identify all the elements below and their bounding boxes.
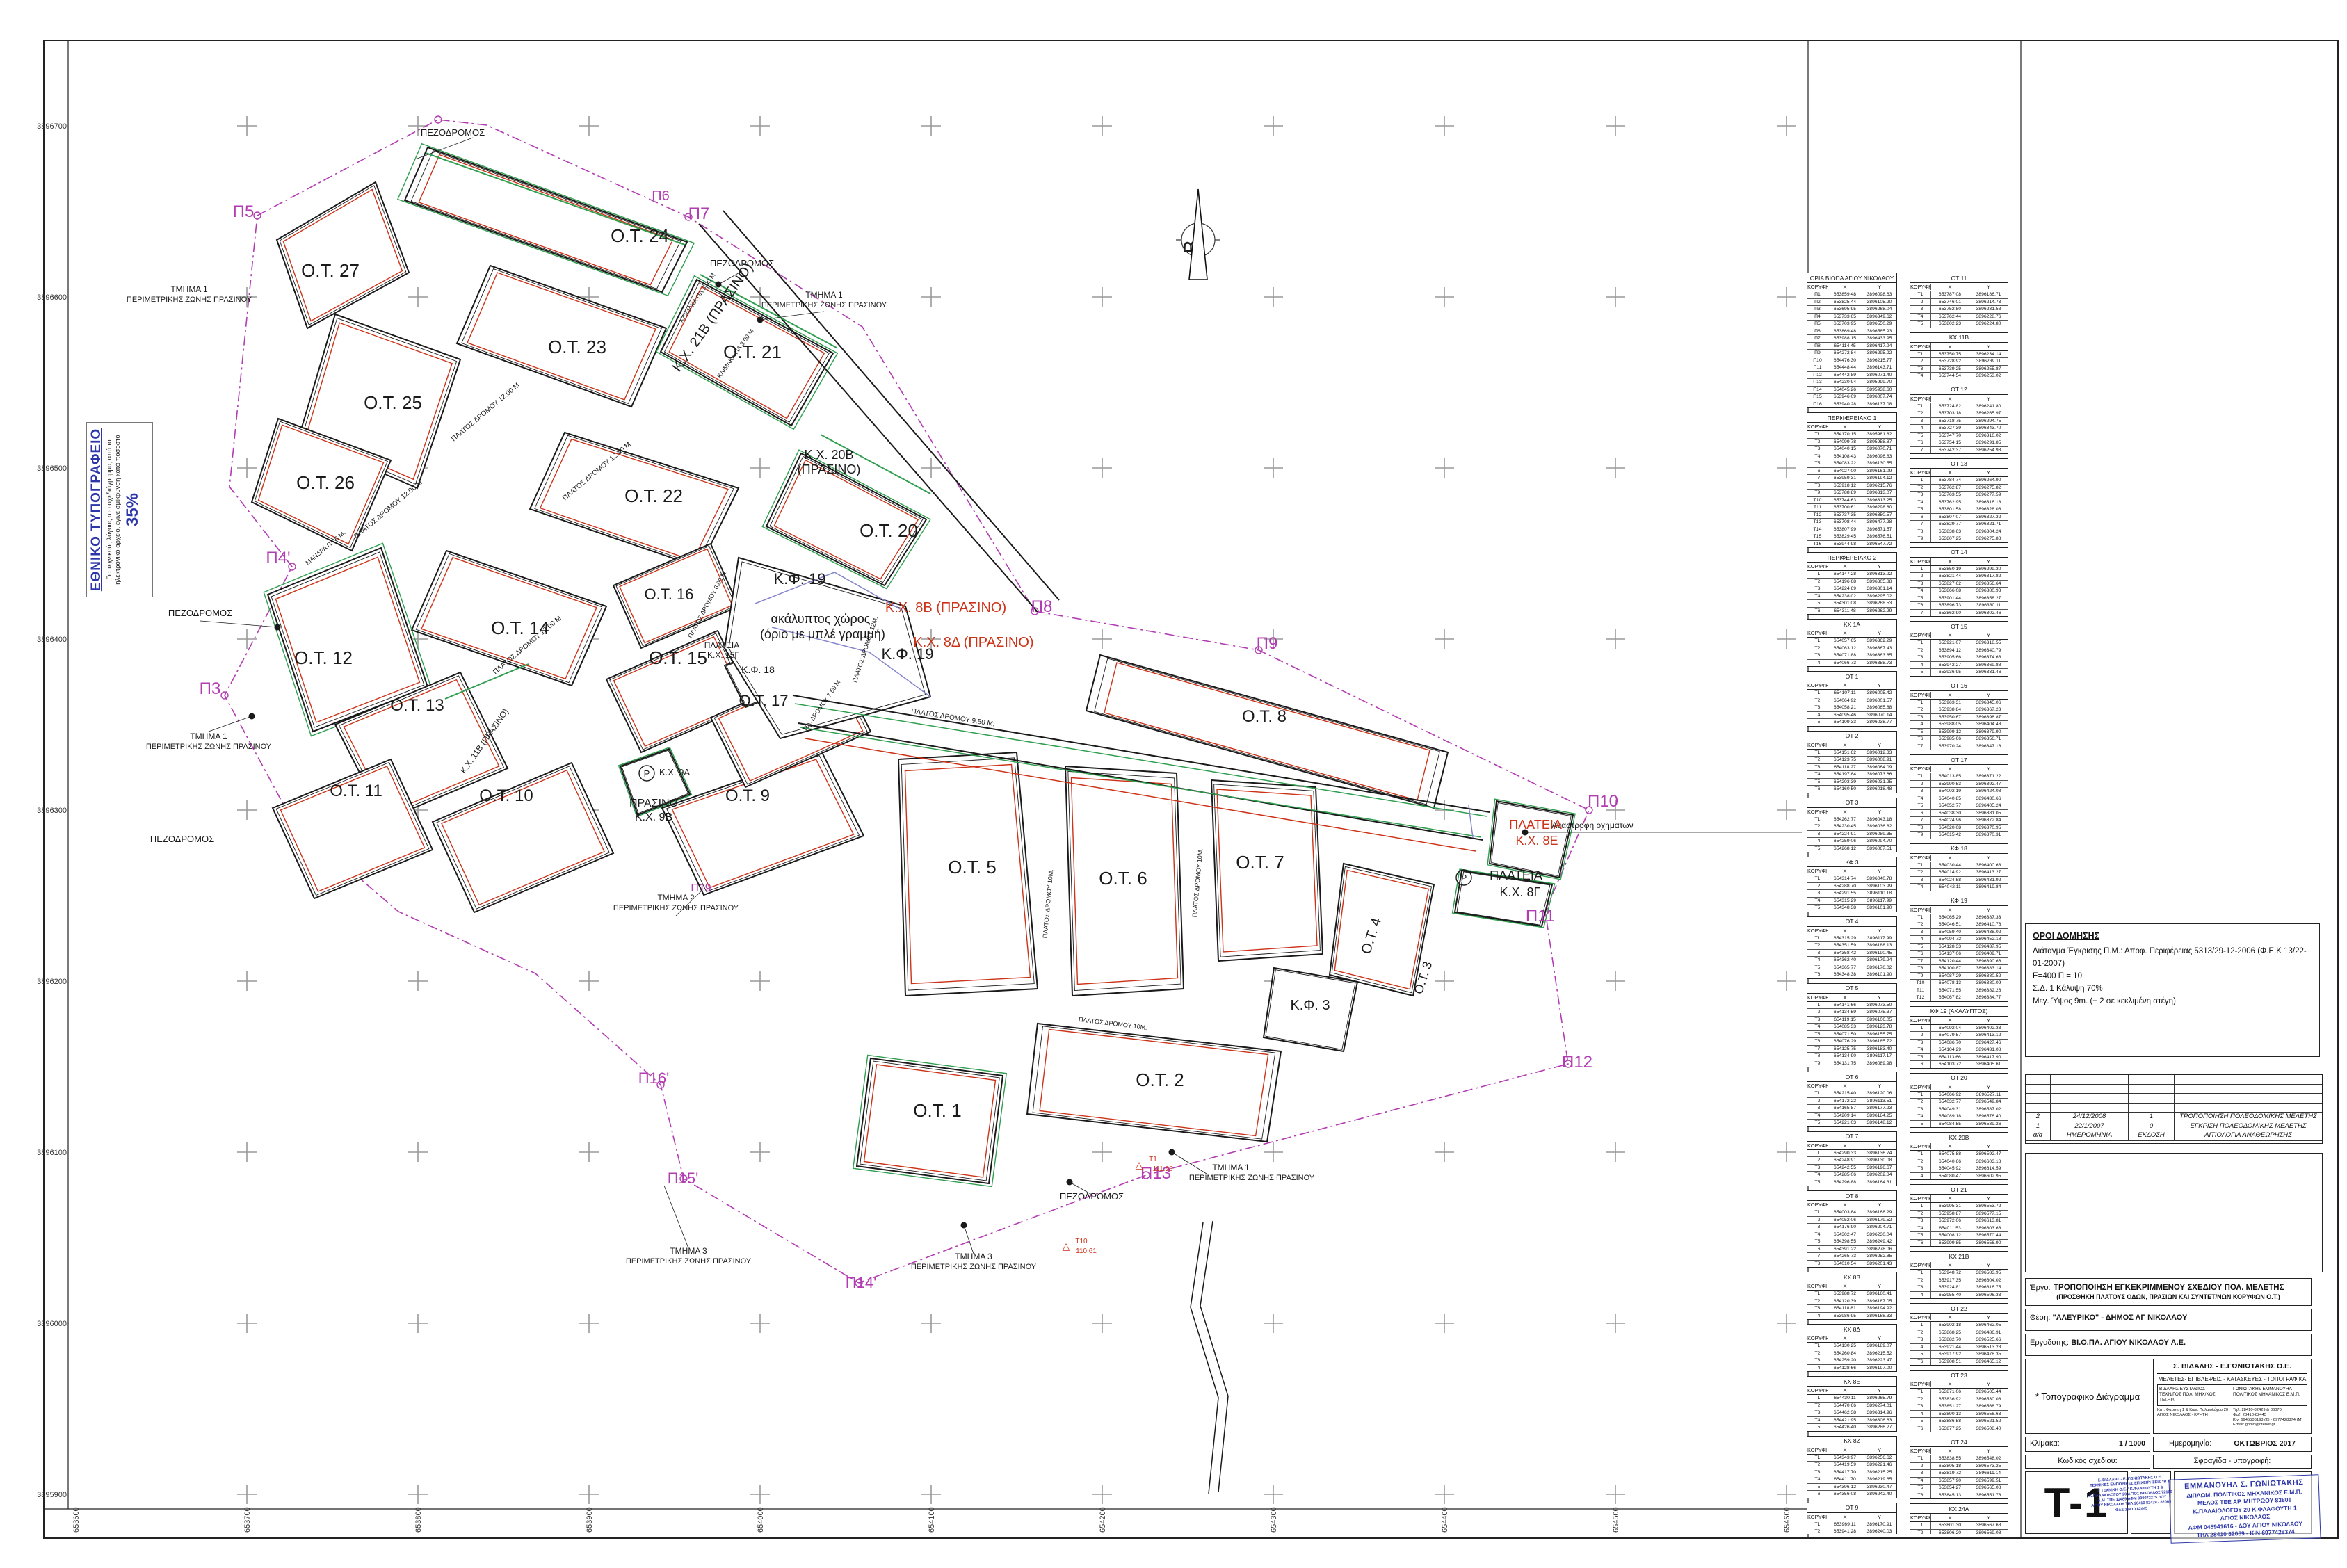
coordinate-row: Π2653825.443896105.20: [1807, 299, 1896, 307]
coordinate-row: Τ7653970.243896347.18: [1910, 743, 2008, 750]
coordinate-row: Τ5654348.383896101.90: [1807, 905, 1896, 912]
map-label: Ο.Τ. 13: [390, 696, 444, 715]
coordinate-row: Τ5654084.553896539.26: [1910, 1121, 2008, 1128]
coordinate-row: Τ5654296.883896164.31: [1807, 1179, 1896, 1186]
coordinate-row: Τ5654052.773896405.24: [1910, 802, 2008, 810]
grid-cross: [1777, 1142, 1796, 1162]
coordinate-row: Τ2654288.703896103.99: [1807, 883, 1896, 891]
map-label: ΠΛΑΤΕΙΑ: [704, 640, 739, 650]
grid-cross: [1606, 1314, 1625, 1333]
partner2-title: ΠΟΛΙΤΙΚΟΣ ΜΗΧΑΝΙΚΟΣ Ε.Μ.Π.: [2233, 1392, 2300, 1397]
map-label: (ΠΡΑΣΙΝΟ): [798, 462, 861, 476]
coordinate-row: Τ4654285.063896202.84: [1807, 1172, 1896, 1179]
stamp-body: Για τεχνικούς λόγους στο σχεδιάγραμμα, α…: [106, 426, 122, 593]
coordinate-row: Τ2653821.443896317.82: [1910, 573, 2008, 581]
grid-cross: [408, 1485, 428, 1504]
grid-label-y: 3895900: [37, 1491, 67, 1499]
map-label: Ο.Τ. 20: [860, 520, 918, 541]
grid-label-y: 3896700: [37, 122, 67, 131]
grid-label-x: 654200: [1099, 1507, 1107, 1533]
coordinate-table-title: ΚΦ 18: [1910, 844, 2008, 854]
map-label: Κ.Φ. 3: [1290, 998, 1330, 1013]
map-label: Κ.Φ. 19: [773, 570, 825, 588]
coordinate-row: Τ6654038.303896381.05: [1910, 810, 2008, 818]
coordinate-row: Τ2654419.593896221.46: [1807, 1462, 1896, 1469]
coordinate-row: Τ4653955.403896596.33: [1910, 1292, 2008, 1299]
coordinate-table: ΚΧ 20ΒΚΟΡΥΦΗXYΤ1654075.883896592.47Τ2654…: [1910, 1132, 2008, 1180]
coordinate-table-title: ΚΧ 8Ζ: [1807, 1437, 1896, 1446]
map-label: ΠΕΖΟΔΡΟΜΟΣ: [150, 834, 214, 844]
coordinate-table-header: ΚΟΡΥΦΗXY: [1910, 343, 2008, 351]
coordinate-row: Τ3653851.273896568.79: [1910, 1403, 2008, 1411]
partner2-name: ΓΩΝΙΩΤΑΚΗΣ ΕΜΜΑΝΟΥΗΛ: [2233, 1387, 2292, 1391]
coordinate-row: Τ7653862.903896302.46: [1910, 610, 2008, 617]
coordinate-table-header: ΚΟΡΥΦΗXY: [1910, 558, 2008, 566]
coordinate-table-title: ΟΤ 8: [1807, 1191, 1896, 1201]
coordinate-row: Τ4653921.443896513.28: [1910, 1344, 2008, 1352]
coordinate-table-header: ΚΟΡΥΦΗXY: [1807, 994, 1896, 1002]
grid-cross: [1606, 116, 1625, 136]
scale-label: Κλίμακα:: [2030, 1439, 2060, 1449]
coordinate-row: Π14654045.263895938.60: [1807, 387, 1896, 394]
titleblock-code: Κωδικός σχεδίου:: [2025, 1455, 2150, 1469]
coordinate-row: Τ4653988.053896404.43: [1910, 721, 2008, 729]
coordinate-row: Τ4653762.953896316.18: [1910, 499, 2008, 507]
coordinate-row: Π12654442.893896071.40: [1807, 372, 1896, 380]
grid-cross: [1435, 116, 1454, 136]
coordinate-row: Τ6654160.503896018.48: [1807, 786, 1896, 793]
map-label: Ο.Τ. 7: [1236, 852, 1284, 873]
coordinate-tables-column-2: ΟΤ 11ΚΟΡΥΦΗXYΤ1653787.083896186.71Τ26537…: [1910, 273, 2008, 1534]
revision-row: [2026, 1104, 2322, 1113]
grid-cross: [1777, 1314, 1796, 1333]
coordinate-row: Τ5653999.123896379.90: [1910, 729, 2008, 736]
coordinate-row: Τ4653890.133896556.63: [1910, 1411, 2008, 1419]
partner1-title: ΤΕΧΝ/ΓΟΣ ΠΟΛ. ΜΗΧ/ΚΟΣ ΤΕΙ.ΗΡ.: [2159, 1392, 2216, 1403]
map-label: Κ.Χ. 8Δ (ΠΡΑΣΙΝΟ): [913, 635, 1033, 650]
coordinate-row: Τ2654230.453896036.82: [1807, 823, 1896, 831]
coordinate-table-title: ΟΤ 23: [1910, 1371, 2008, 1380]
coordinate-row: Τ4653727.393896343.70: [1910, 425, 2008, 433]
coordinate-row: Τ3653950.673896398.87: [1910, 714, 2008, 722]
grid-label-x: 653600: [72, 1507, 81, 1533]
grid-cross: [579, 1142, 599, 1162]
coordinate-table: ΟΤ 16ΚΟΡΥΦΗXYΤ1653963.313896345.06Τ26539…: [1910, 681, 2008, 751]
grid-cross: [237, 1142, 257, 1162]
date-label: Ημερομηνία:: [2169, 1439, 2211, 1449]
coordinate-row: Τ2654046.513896410.76: [1910, 921, 2008, 929]
coordinate-table-title: ΚΧ 11Β: [1910, 333, 2008, 343]
coordinate-table-title: ΟΤ 11: [1910, 273, 2008, 283]
coordinate-row: Τ3653819.723896611.14: [1910, 1470, 2008, 1478]
coordinate-row: Τ2654260.843896215.52: [1807, 1350, 1896, 1358]
grid-cross: [237, 971, 257, 991]
coordinate-table-header: ΚΟΡΥΦΗXY: [1807, 1201, 1896, 1209]
coordinate-table-header: ΚΟΡΥΦΗXY: [1807, 563, 1896, 571]
coordinate-row: Τ4654108.433896096.83: [1807, 453, 1896, 461]
grid-cross: [1777, 458, 1796, 478]
coordinate-row: Τ1654262.773896043.18: [1807, 816, 1896, 824]
coordinate-table-title: ΟΤ 6: [1807, 1072, 1896, 1082]
grid-cross: [1092, 458, 1112, 478]
coordinate-row: Τ5653901.443896358.27: [1910, 595, 2008, 603]
map-label: Π6: [652, 188, 670, 204]
coordinate-table: ΟΤ 13ΚΟΡΥΦΗXYΤ1653784.743896264.90Τ26537…: [1910, 458, 2008, 543]
engineer-stamp: ΕΜΜΑΝΟΥΗΛ Σ. ΓΩΝΙΩΤΑΚΗΣΔΙΠΛΩΜ. ΠΟΛΙΤΙΚΟΣ…: [2168, 1474, 2321, 1543]
map-label: Ο.Τ. 1: [913, 1100, 961, 1121]
grid-cross: [579, 1485, 599, 1504]
coordinate-table-title: ΚΧ 24Α: [1910, 1504, 2008, 1514]
coordinate-row: Τ4654362.403896179.24: [1807, 957, 1896, 964]
grid-label-x: 653900: [586, 1507, 594, 1533]
grid-cross: [1264, 458, 1283, 478]
coordinate-row: Τ6653807.073896327.32: [1910, 514, 2008, 522]
coordinate-table: ΟΤ 1ΚΟΡΥΦΗXYΤ1654107.113896005.42Τ265406…: [1807, 671, 1897, 727]
grid-cross: [1264, 287, 1283, 307]
coordinate-table-title: ΚΧ 8Β: [1807, 1272, 1896, 1282]
company-tel: Τηλ: 28410-82429 & 86070: [2233, 1408, 2282, 1412]
map-label: Ο.Τ. 24: [611, 225, 669, 246]
coordinate-table-header: ΚΟΡΥΦΗXY: [1807, 1334, 1896, 1343]
grid-cross: [1777, 971, 1796, 991]
grid-cross: [1435, 629, 1454, 649]
coordinate-table-title: ΚΧ 20Β: [1910, 1133, 2008, 1142]
coordinate-table: ΚΧ 11ΒΚΟΡΥΦΗXYΤ1653750.753896234.14Τ2653…: [1910, 332, 2008, 380]
grid-cross: [237, 116, 257, 136]
coordinate-row: Τ11653700.613896298.80: [1807, 504, 1896, 512]
coordinate-row: Π3653695.953896268.04: [1807, 306, 1896, 314]
coordinate-row: Τ3653972.063896613.81: [1910, 1218, 2008, 1225]
coordinate-row: Τ3654462.383896314.96: [1807, 1409, 1896, 1417]
coordinate-row: Τ5653801.583896328.06: [1910, 506, 2008, 514]
coordinate-row: Τ8653918.123896215.76: [1807, 483, 1896, 490]
map-label: Τ10: [1075, 1238, 1088, 1245]
coordinate-table-title: ΟΤ 4: [1807, 917, 1896, 927]
grid-cross: [750, 1142, 770, 1162]
map-label: Αναστροφη οχηματων: [1551, 821, 1633, 830]
coordinate-row: Τ3653752.803896231.58: [1910, 306, 2008, 314]
coordinate-row: Τ3654358.423896190.45: [1807, 950, 1896, 957]
coordinate-row: Τ3654224.913896089.35: [1807, 831, 1896, 839]
coordinate-row: Τ4654209.143896184.25: [1807, 1113, 1896, 1120]
grid-cross: [750, 1314, 770, 1333]
grid-cross: [1606, 629, 1625, 649]
coordinate-row: Τ5654398.553896249.42: [1807, 1238, 1896, 1246]
coordinate-row: Τ8654134.903896117.17: [1807, 1053, 1896, 1060]
map-label: Π12: [1562, 1053, 1592, 1072]
coordinate-row: Τ2653868.253896486.91: [1910, 1329, 2008, 1337]
map-label: Κ.Φ. 18: [741, 664, 775, 675]
grid-cross: [408, 1314, 428, 1333]
map-label: Κ.Χ. 8Ε: [1515, 834, 1558, 848]
coordinate-row: Τ5654365.773896176.02: [1807, 964, 1896, 972]
coordinate-row: Τ6653999.853896556.90: [1910, 1240, 2008, 1247]
coordinate-table-title: ΟΤ 21: [1910, 1185, 2008, 1195]
coordinate-row: Τ1653871.063896505.44: [1910, 1389, 2008, 1396]
coordinate-table-title: ΟΤ 24: [1910, 1437, 2008, 1447]
coordinate-row: Τ6653908.513896465.12: [1910, 1359, 2008, 1366]
coordinate-tables-column-1: ΟΡΙΑ ΒΙΟΠΑ ΑΓΙΟΥ ΝΙΚΟΛΑΟΥΚΟΡΥΦΗXYΠ165385…: [1807, 273, 1897, 1534]
coordinate-table-title: ΚΧ 1Α: [1807, 620, 1896, 629]
coordinate-table-title: ΟΤ 17: [1910, 755, 2008, 765]
leader-dot: [1067, 1179, 1073, 1186]
empty-reserved-box: [2025, 1153, 2323, 1272]
coordinate-row: Τ1653784.743896264.90: [1910, 477, 2008, 485]
coordinate-row: Τ4653986.953896168.33: [1807, 1313, 1896, 1320]
coordinate-row: Τ7653742.373896254.98: [1910, 447, 2008, 454]
grid-label-x: 654100: [928, 1507, 936, 1533]
leader-dot: [1169, 1149, 1175, 1156]
coordinate-table: ΟΤ 22ΚΟΡΥΦΗXYΤ1653902.183896462.05Τ26538…: [1910, 1303, 2008, 1366]
coordinate-table-header: ΚΟΡΥΦΗXY: [1910, 1195, 2008, 1203]
map-label: ΤΜΗΜΑ 1: [1212, 1163, 1250, 1172]
coordinate-row: Τ2653836.923896530.08: [1910, 1396, 2008, 1404]
coordinate-table-header: ΚΟΡΥΦΗXY: [1910, 691, 2008, 700]
map-label: Κ.Χ. 15Γ: [707, 650, 739, 660]
coordinate-table: ΟΤ 17ΚΟΡΥΦΗXYΤ1654013.853896371.22Τ26539…: [1910, 754, 2008, 839]
map-label: ΠΕΡΙΜΕΤΡΙΚΗΣ ΖΩΝΗΣ ΠΡΑΣΙΝΟΥ: [146, 743, 272, 751]
coordinate-row: Τ2654014.923896413.27: [1910, 869, 2008, 877]
coordinate-table-header: ΚΟΡΥΦΗXY: [1910, 1017, 2008, 1025]
coordinate-row: Τ5654301.083896268.53: [1807, 600, 1896, 608]
coordinate-row: Τ9654131.753896089.98: [1807, 1060, 1896, 1067]
map-label: ΠΕΖΟΔΡΟΜΟΣ: [421, 127, 485, 138]
coordinate-table: ΟΤ 23ΚΟΡΥΦΗXYΤ1653871.063896505.44Τ26538…: [1910, 1370, 2008, 1432]
coordinate-row: Τ1653750.753896234.14: [1910, 351, 2008, 359]
grid-cross: [1092, 1485, 1112, 1504]
map-label: ΠΕΡΙΜΕΤΡΙΚΗΣ ΖΩΝΗΣ ΠΡΑΣΙΝΟΥ: [761, 301, 887, 309]
plan-geometry: ΡΡ: [200, 116, 1802, 1494]
map-label: Κ.Χ. 20Β: [804, 448, 853, 462]
coordinate-row: Τ3654118.813896194.92: [1807, 1305, 1896, 1313]
coordinate-row: Τ5654426.403896286.27: [1807, 1424, 1896, 1431]
grid-cross: [1435, 458, 1454, 478]
client-label: Εργοδότης:: [2030, 1339, 2069, 1347]
grid-cross: [1777, 287, 1796, 307]
coordinate-row: Τ2654470.663896274.01: [1807, 1403, 1896, 1410]
coordinate-table-title: ΟΤ 22: [1910, 1304, 2008, 1314]
coordinate-table-title: ΟΤ 13: [1910, 459, 2008, 469]
grid-cross: [237, 1314, 257, 1333]
coordinate-row: Τ7654265.733896252.85: [1807, 1253, 1896, 1261]
map-label: Π16': [638, 1069, 670, 1087]
coordinate-row: Τ10654078.133896380.09: [1910, 980, 2008, 987]
coordinate-row: Τ13653708.443896477.28: [1807, 519, 1896, 526]
coordinate-table-title: ΟΤ 20: [1910, 1074, 2008, 1083]
building-terms-note: ΟΡΟΙ ΔΟΜΗΣΗΣ Διάταγμα Έγκρισης Π.Μ.: Απο…: [2025, 923, 2320, 1057]
grid-cross: [1435, 1314, 1454, 1333]
coordinate-table-header: ΚΟΡΥΦΗXY: [1807, 283, 1896, 291]
coordinate-table-title: ΚΧ 8Ε: [1807, 1377, 1896, 1387]
map-label: ΠΕΡΙΜΕΤΡΙΚΗΣ ΖΩΝΗΣ ΠΡΑΣΙΝΟΥ: [613, 904, 739, 912]
coordinate-table-title: ΚΦ 19 (ΑΚΑΛΥΠΤΟΣ): [1910, 1007, 2008, 1017]
grid-label-y: 3896500: [37, 464, 67, 473]
leader-dot: [961, 1222, 967, 1229]
map-label: ΤΜΗΜΑ 1: [170, 284, 208, 294]
company-email: Email: gonio@otenet.gr: [2233, 1423, 2275, 1427]
coordinate-row: Τ15653829.453896576.51: [1807, 533, 1896, 541]
coordinate-row: Τ2653917.353896604.02: [1910, 1277, 2008, 1285]
coordinate-row: Τ3653718.753896294.75: [1910, 418, 2008, 426]
coordinate-table-header: ΚΟΡΥΦΗXY: [1807, 1282, 1896, 1291]
coordinate-row: Τ4654042.113896419.84: [1910, 884, 2008, 891]
grid-cross: [921, 458, 941, 478]
map-label: Π5: [233, 202, 255, 221]
grid-cross: [1264, 1314, 1283, 1333]
coordinate-table-header: ΚΟΡΥΦΗXY: [1910, 1142, 2008, 1151]
grid-cross: [237, 458, 257, 478]
map-label: Ο.Τ. 5: [948, 857, 996, 878]
grid-label-y: 3896400: [37, 636, 67, 644]
coordinate-row: Τ1654065.293896387.33: [1910, 914, 2008, 922]
coordinate-row: Τ1654315.293896117.99: [1807, 935, 1896, 943]
coordinate-row: Π4653733.653896349.62: [1807, 314, 1896, 321]
coordinate-row: Τ4654128.663896197.00: [1807, 1365, 1896, 1372]
coordinate-table-title: ΟΤ 5: [1807, 984, 1896, 994]
grid-cross: [1092, 116, 1112, 136]
project-label: Έργο:: [2030, 1284, 2051, 1292]
coordinate-row: Π9654272.843896295.92: [1807, 350, 1896, 357]
map-label: ΤΜΗΜΑ 2: [657, 893, 695, 903]
map-label: Ο.Τ. 16: [645, 585, 694, 603]
coordinate-table: ΚΧ 21ΒΚΟΡΥΦΗXYΤ1653948.723896583.95Τ2653…: [1910, 1251, 2008, 1299]
coordinate-table: ΟΤ 9ΚΟΡΥΦΗXYΤ1653969.113896170.91Τ265394…: [1807, 1503, 1897, 1535]
coordinate-row: Τ1654170.153895981.82: [1807, 431, 1896, 439]
map-label: ΠΕΡΙΜΕΤΡΙΚΗΣ ΖΩΝΗΣ ΠΡΑΣΙΝΟΥ: [626, 1257, 752, 1266]
leader-dot: [716, 282, 722, 288]
revision-row: 224/12/20081ΤΡΟΠΟΠΟΙΗΣΗ ΠΟΛΕΟΔΟΜΙΚΗΣ ΜΕΛ…: [2026, 1113, 2322, 1122]
grid-cross: [237, 629, 257, 649]
coordinate-row: Τ1654075.883896592.47: [1910, 1151, 2008, 1158]
coordinate-row: Τ3654040.153896070.71: [1807, 446, 1896, 453]
grid-cross: [1435, 287, 1454, 307]
grid-label-x: 654500: [1612, 1507, 1620, 1533]
coordinate-table: ΟΤ 15ΚΟΡΥΦΗXYΤ1653921.073896318.55Τ26538…: [1910, 621, 2008, 677]
coordinate-row: Τ4653762.443896228.76: [1910, 314, 2008, 321]
coordinate-table-title: ΟΡΙΑ ΒΙΟΠΑ ΑΓΙΟΥ ΝΙΚΟΛΑΟΥ: [1807, 273, 1896, 283]
coordinate-row: Τ8654010.543896201.43: [1807, 1261, 1896, 1268]
coordinate-row: Τ3654165.873896177.93: [1807, 1105, 1896, 1113]
coordinate-table-title: ΟΤ 12: [1910, 385, 2008, 395]
grid-label-x: 654400: [1441, 1507, 1449, 1533]
coordinate-row: Τ6654076.293896185.72: [1807, 1038, 1896, 1046]
project-title: ΤΡΟΠΟΠΟΙΗΣΗ ΕΓΚΕΚΡΙΜΜΕΝΟΥ ΣΧΕΔΙΟΥ ΠΟΛ. Μ…: [2054, 1284, 2284, 1292]
coordinate-row: Τ1653995.313896553.72: [1910, 1203, 2008, 1211]
coordinate-row: Τ2653958.873896577.15: [1910, 1211, 2008, 1218]
grid-cross: [1435, 1142, 1454, 1162]
parking-symbol-letter: Ρ: [644, 768, 650, 779]
grid-cross: [579, 971, 599, 991]
revision-table: 224/12/20081ΤΡΟΠΟΠΟΙΗΣΗ ΠΟΛΕΟΔΟΜΙΚΗΣ ΜΕΛ…: [2025, 1074, 2323, 1144]
notes-line: Σ.Δ. 1 Κάλυψη 70%: [2033, 983, 2312, 996]
grid-cross: [237, 1485, 257, 1504]
map-label: Ο.Τ. 8: [1242, 707, 1287, 726]
map-label: Ο.Τ. 6: [1099, 868, 1147, 889]
coordinate-row: Τ6653896.733896330.11: [1910, 602, 2008, 610]
plan-line: [664, 1186, 688, 1248]
coordinate-table-title: ΟΤ 7: [1807, 1132, 1896, 1142]
coordinate-row: Τ4654104.293896431.08: [1910, 1046, 2008, 1054]
coordinate-table: ΚΦ 3ΚΟΡΥΦΗXYΤ1654314.743896040.78Τ265428…: [1807, 857, 1897, 912]
coordinate-table-header: ΚΟΡΥΦΗXY: [1910, 854, 2008, 862]
coordinate-table: ΠΕΡΙΦΕΡΕΙΑΚΟ 1ΚΟΡΥΦΗXYΤ1654170.153895981…: [1807, 412, 1897, 548]
map-label: Ο.Τ. 10: [479, 786, 533, 805]
coordinate-row: Τ5654113.663896417.90: [1910, 1054, 2008, 1062]
coordinate-row: Τ4654085.333896123.78: [1807, 1024, 1896, 1031]
coordinate-row: Τ3653827.623896356.64: [1910, 581, 2008, 588]
coordinate-row: Τ3654059.403896438.02: [1910, 929, 2008, 937]
coordinate-row: Τ3654259.203896223.47: [1807, 1357, 1896, 1365]
notes-line: Ε=400 Π = 10: [2033, 971, 2312, 983]
grid-cross: [1606, 1485, 1625, 1504]
coordinate-row: Τ3653905.663896374.66: [1910, 654, 2008, 662]
coordinate-row: Τ2654248.913896130.08: [1807, 1157, 1896, 1165]
coordinate-row: Τ5654268.123896067.51: [1807, 846, 1896, 852]
coordinate-table-header: ΚΟΡΥΦΗXY: [1910, 469, 2008, 477]
map-label: Κ.Χ. 8Β (ΠΡΑΣΙΝΟ): [885, 600, 1006, 615]
revision-row: 122/1/20070ΕΓΚΡΙΣΗ ΠΟΛΕΟΔΟΜΙΚΗΣ ΜΕΛΕΤΗΣ: [2026, 1122, 2322, 1132]
revision-row: [2026, 1075, 2322, 1085]
plan-line: [209, 716, 252, 732]
map-label: Ο.Τ. 23: [548, 337, 606, 357]
map-label: ΠΕΖΟΔΡΟΜΟΣ: [710, 258, 774, 268]
coordinate-row: Τ11654071.553896382.26: [1910, 987, 2008, 995]
coordinate-table-header: ΚΟΡΥΦΗXY: [1910, 906, 2008, 914]
coordinate-row: Τ1653787.083896186.71: [1910, 291, 2008, 299]
coordinate-table-header: ΚΟΡΥΦΗXY: [1807, 423, 1896, 431]
coordinate-table-header: ΚΟΡΥΦΗXY: [1910, 1261, 2008, 1270]
coordinate-row: Τ1654107.113896005.42: [1807, 690, 1896, 697]
coordinate-row: Τ4653857.903896599.51: [1910, 1478, 2008, 1485]
coordinate-row: Τ2654052.063896179.52: [1807, 1217, 1896, 1225]
coordinate-row: Π13654230.943895999.70: [1807, 379, 1896, 387]
coordinate-row: Τ1653948.723896583.95: [1910, 1270, 2008, 1277]
coordinate-table-title: ΟΤ 15: [1910, 622, 2008, 631]
coordinate-row: Τ2654351.593896188.13: [1807, 942, 1896, 950]
grid-cross: [1777, 116, 1796, 136]
coordinate-row: Τ6653754.153896291.85: [1910, 439, 2008, 447]
titleblock-company: Σ. ΒΙΔΑΛΗΣ - Ε.ΓΩΝΙΩΤΑΚΗΣ Ο.Ε. ΜΕΛΕΤΕΣ- …: [2153, 1359, 2312, 1434]
coordinate-row: Τ5654109.333896038.77: [1807, 719, 1896, 726]
coordinate-table: ΟΤ 14ΚΟΡΥΦΗXYΤ1653850.193896299.30Τ26538…: [1910, 547, 2008, 617]
coordinate-row: Τ4654421.953896306.63: [1807, 1417, 1896, 1425]
coordinate-row: Τ4654302.473896230.04: [1807, 1231, 1896, 1239]
coordinate-row: Τ6654137.063896409.71: [1910, 951, 2008, 958]
coordinate-row: Τ4653744.543896253.02: [1910, 373, 2008, 380]
coordinate-row: Τ3654045.923896614.59: [1910, 1165, 2008, 1173]
coordinate-row: Τ1653724.823896241.80: [1910, 403, 2008, 411]
coordinate-row: Τ2654196.683896305.88: [1807, 579, 1896, 586]
coordinate-table: ΚΧ 8ΒΚΟΡΥΦΗXYΤ1653988.723896160.41Τ26541…: [1807, 1272, 1897, 1320]
coordinate-row: Τ4654197.843896073.66: [1807, 771, 1896, 779]
coordinate-row: Π7653988.153896433.95: [1807, 335, 1896, 343]
grid-label-y: 3896600: [37, 293, 67, 302]
coordinate-row: Τ1654151.623896012.33: [1807, 750, 1896, 757]
revision-row: [2026, 1094, 2322, 1104]
coordinate-row: Τ6654311.483896262.29: [1807, 608, 1896, 615]
company-activities: ΜΕΛΕΤΕΣ- ΕΠΙΒΛΕΨΕΙΣ - ΚΑΤΑΣΚΕΥΕΣ - ΤΟΠΟΓ…: [2157, 1376, 2307, 1383]
coordinate-row: Τ1654343.973896256.62: [1807, 1455, 1896, 1462]
coordinate-table-header: ΚΟΡΥΦΗXY: [1807, 808, 1896, 816]
map-label: Π4': [266, 549, 290, 567]
coordinate-row: Τ4654315.293896117.99: [1807, 898, 1896, 905]
plan-line: [1469, 805, 1473, 838]
grid-label-x: 653700: [243, 1507, 252, 1533]
coordinate-table-title: ΚΦ 19: [1910, 896, 2008, 906]
coordinate-table: ΟΤ 21ΚΟΡΥΦΗXYΤ1653995.313896553.72Τ26539…: [1910, 1184, 2008, 1247]
coordinate-row: Τ8654020.083896370.95: [1910, 825, 2008, 832]
coordinate-table: ΟΤ 6ΚΟΡΥΦΗXYΤ1654215.403896120.06Τ265417…: [1807, 1072, 1897, 1127]
